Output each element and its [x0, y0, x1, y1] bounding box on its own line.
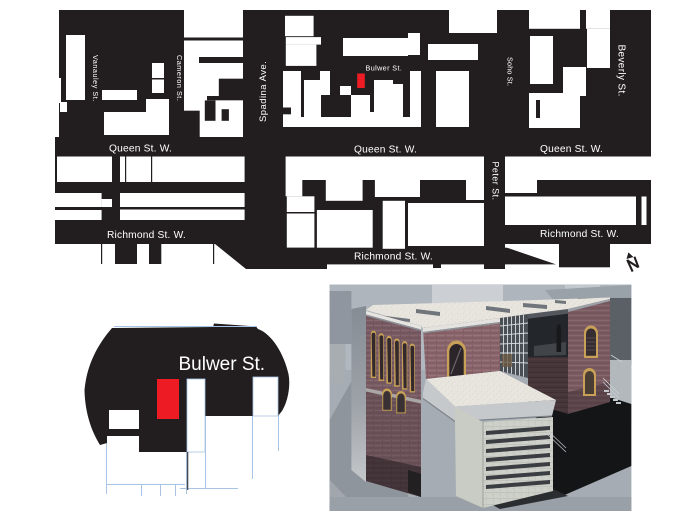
svg-text:Bulwer St.: Bulwer St. — [179, 354, 266, 375]
svg-text:Beverly St.: Beverly St. — [616, 45, 627, 97]
svg-text:Vanauley St.: Vanauley St. — [91, 55, 100, 102]
svg-text:Bulwer St.: Bulwer St. — [366, 64, 403, 73]
svg-text:Peter St.: Peter St. — [491, 162, 501, 201]
svg-text:Richmond St. W.: Richmond St. W. — [540, 229, 619, 240]
svg-text:Queen St. W.: Queen St. W. — [109, 144, 172, 155]
svg-text:Cameron St.: Cameron St. — [175, 55, 184, 101]
svg-text:Richmond St. W.: Richmond St. W. — [107, 230, 186, 241]
svg-text:Queen St. W.: Queen St. W. — [540, 144, 603, 155]
svg-text:Spadina Ave.: Spadina Ave. — [258, 61, 269, 122]
svg-text:Richmond St. W.: Richmond St. W. — [354, 252, 433, 263]
svg-text:Soho St.: Soho St. — [506, 57, 515, 86]
svg-text:Queen St. W.: Queen St. W. — [354, 145, 417, 156]
